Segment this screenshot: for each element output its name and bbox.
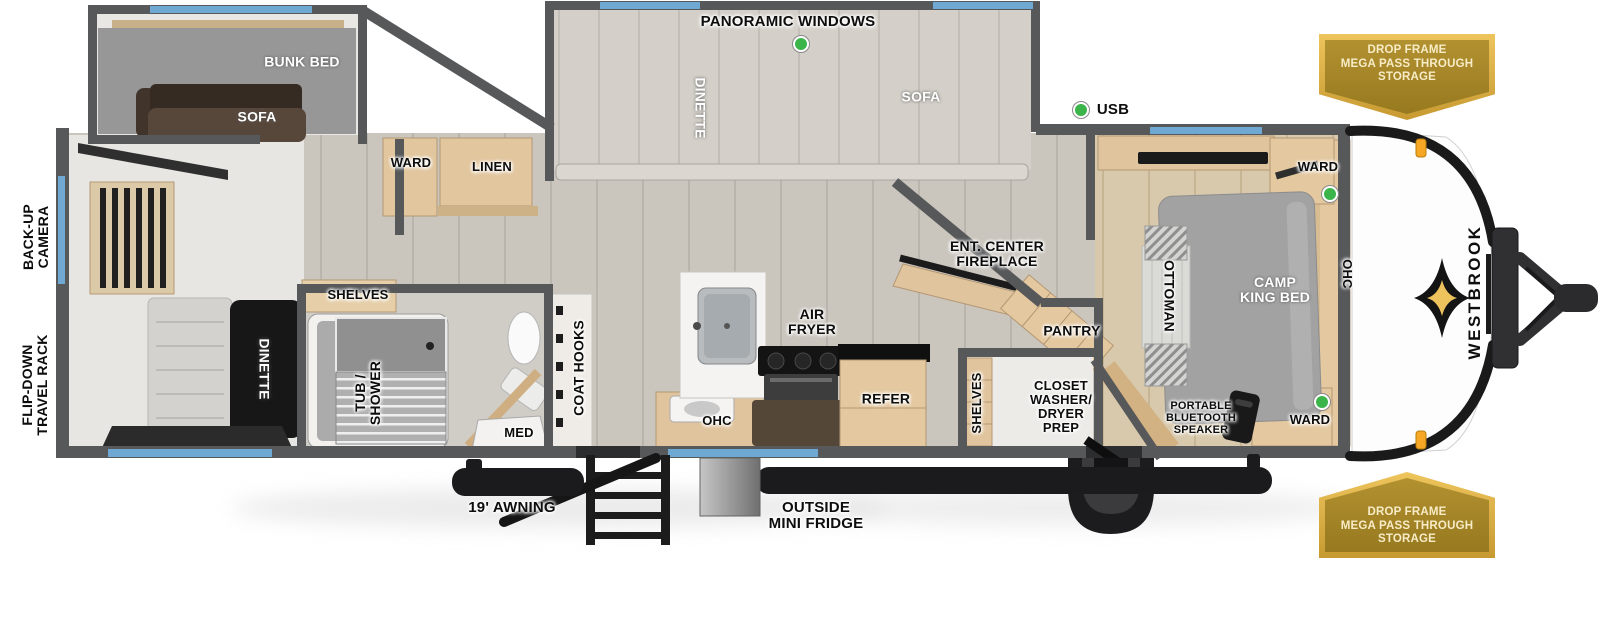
floorplan: PANORAMIC WINDOWS BUNK BED SOFA DINETTE …	[0, 0, 1600, 629]
label-air-fryer: AIR FRYER	[788, 307, 836, 337]
label-camp-king-bed: CAMP KING BED	[1240, 275, 1310, 305]
clearance-light-top	[1416, 139, 1426, 157]
label-outside-mini-fridge: OUTSIDE MINI FRIDGE	[769, 500, 864, 532]
label-ward-front: WARD	[1298, 160, 1339, 174]
label-ward-rear: WARD	[1290, 413, 1331, 427]
mini-fridge-graphic	[700, 458, 760, 516]
label-closet-washer-dryer: CLOSET WASHER/ DRYER PREP	[1030, 379, 1092, 435]
window-indicator-dot	[793, 36, 809, 52]
label-ottoman: OTTOMAN	[1161, 260, 1176, 332]
label-usb: USB	[1097, 102, 1129, 118]
toilet	[508, 312, 540, 364]
hitch	[1492, 228, 1598, 368]
label-coat-hooks: COAT HOOKS	[571, 320, 586, 416]
label-bedroom-ohc: OHC	[1340, 259, 1354, 289]
usb-indicator-dot	[1073, 102, 1089, 118]
label-slide-dinette: DINETTE	[692, 77, 707, 138]
storage-badge-top: DROP FRAME MEGA PASS THROUGH STORAGE	[1319, 34, 1495, 120]
entry-door	[576, 446, 640, 458]
storage-badge-bottom: DROP FRAME MEGA PASS THROUGH STORAGE	[1319, 472, 1495, 558]
brand-logo-westbrook: WESTBROOK	[1466, 225, 1484, 360]
storage-badge-text: DROP FRAME MEGA PASS THROUGH STORAGE	[1319, 44, 1495, 85]
label-slide-sofa: SOFA	[902, 89, 941, 104]
storage-badge-text: DROP FRAME MEGA PASS THROUGH STORAGE	[1319, 506, 1495, 547]
hall-cabinets	[383, 138, 538, 216]
label-ward-mid: WARD	[391, 156, 432, 170]
label-bath-shelves: SHELVES	[327, 288, 388, 302]
label-bunk-bed: BUNK BED	[264, 54, 340, 69]
ward-front-indicator-dot	[1322, 186, 1338, 202]
ward-rear-indicator-dot	[1314, 394, 1330, 410]
label-ent-center-fireplace: ENT. CENTER FIREPLACE	[950, 239, 1044, 269]
label-tub-shower: TUB / SHOWER	[353, 361, 383, 425]
label-refer: REFER	[862, 391, 910, 406]
label-linen: LINEN	[472, 160, 512, 174]
label-rear-dinette: DINETTE	[256, 338, 271, 399]
label-flip-down-travel-rack: FLIP-DOWN TRAVEL RACK	[20, 334, 50, 435]
label-panoramic-windows: PANORAMIC WINDOWS	[701, 14, 876, 30]
label-awning: 19' AWNING	[468, 500, 556, 516]
label-bluetooth-speaker: PORTABLE BLUETOOTH SPEAKER	[1166, 401, 1236, 437]
label-pantry: PANTRY	[1043, 323, 1100, 338]
label-bunk-sofa: SOFA	[238, 109, 277, 124]
label-med: MED	[504, 426, 534, 440]
bunk-room	[98, 20, 356, 142]
label-closet-shelves: SHELVES	[970, 372, 984, 433]
clearance-light-bottom	[1416, 431, 1426, 449]
label-kitchen-ohc: OHC	[702, 414, 732, 428]
label-back-up-camera: BACK-UP CAMERA	[21, 204, 51, 270]
